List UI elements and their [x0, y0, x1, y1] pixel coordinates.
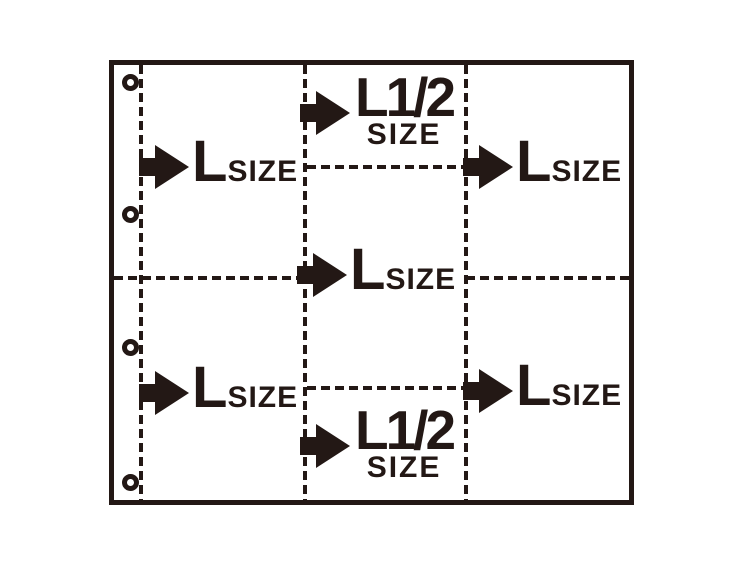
dashed-divider-half-top: [307, 165, 466, 169]
dashed-divider-vertical-left: [139, 65, 143, 500]
label-bottom-right-l-size: LSIZE: [463, 368, 622, 414]
label-sub-text: SIZE: [551, 155, 622, 188]
dashed-divider-half-bottom: [307, 386, 466, 390]
label-text: LSIZE: [192, 139, 298, 195]
label-text: L1/2 SIZE: [355, 408, 453, 484]
right-arrow-icon: [463, 369, 513, 413]
label-main-text: L: [350, 237, 385, 302]
label-sub-text: SIZE: [367, 452, 442, 484]
label-sub-text: SIZE: [385, 263, 456, 296]
label-main-text: L: [516, 129, 551, 194]
right-arrow-icon: [139, 145, 189, 189]
right-arrow-icon: [300, 91, 350, 135]
label-text: LSIZE: [516, 363, 622, 419]
label-main-text: L: [192, 355, 227, 420]
label-text: L1/2 SIZE: [355, 75, 453, 151]
right-arrow-icon: [139, 371, 189, 415]
label-top-right-l-size: LSIZE: [463, 144, 622, 190]
label-sub-text: SIZE: [227, 381, 298, 414]
label-top-middle-l-half-size: L1/2 SIZE: [300, 75, 453, 151]
right-arrow-icon: [297, 253, 347, 297]
dashed-divider-horizontal-middle-right: [466, 276, 629, 280]
label-text: LSIZE: [516, 139, 622, 195]
binder-hole-icon: [122, 206, 139, 223]
photo-album-refill-diagram: LSIZE LSIZE LSIZE LSIZE LSIZE L1/2 SIZE …: [0, 0, 750, 563]
binder-hole-icon: [122, 474, 139, 491]
label-main-text: L: [516, 353, 551, 418]
label-sub-text: SIZE: [551, 379, 622, 412]
binder-hole-icon: [122, 74, 139, 91]
right-arrow-icon: [300, 424, 350, 468]
label-main-text: L1/2: [355, 75, 453, 119]
right-arrow-icon: [463, 145, 513, 189]
label-center-l-size: LSIZE: [297, 252, 456, 298]
dashed-divider-vertical-right: [464, 65, 468, 500]
label-text: LSIZE: [192, 365, 298, 421]
label-bottom-left-l-size: LSIZE: [139, 370, 298, 416]
label-bottom-middle-l-half-size: L1/2 SIZE: [300, 408, 453, 484]
label-sub-text: SIZE: [367, 119, 442, 151]
label-text: LSIZE: [350, 247, 456, 303]
binder-hole-icon: [122, 339, 139, 356]
dashed-divider-horizontal-middle-left: [114, 276, 298, 280]
label-main-text: L1/2: [355, 408, 453, 452]
label-main-text: L: [192, 129, 227, 194]
label-top-left-l-size: LSIZE: [139, 144, 298, 190]
label-sub-text: SIZE: [227, 155, 298, 188]
